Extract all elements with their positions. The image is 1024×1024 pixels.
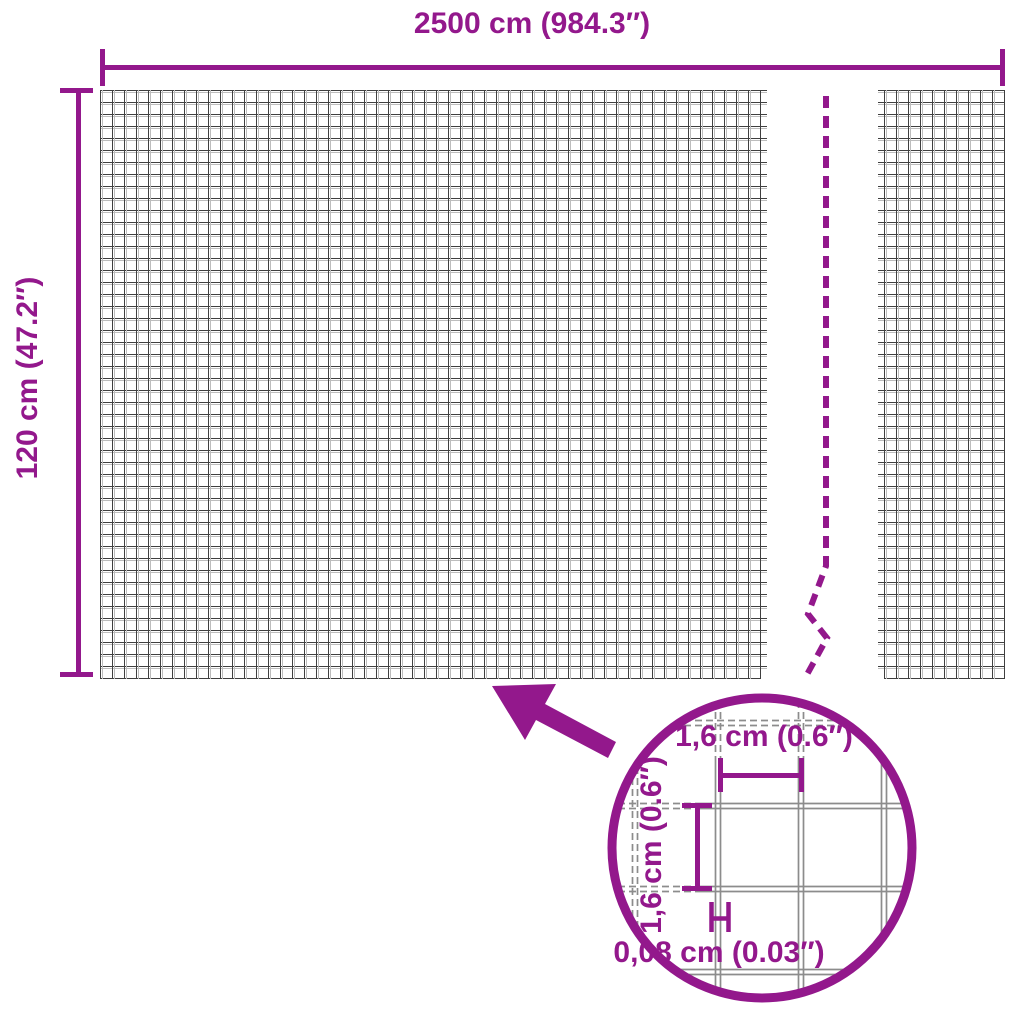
cell-width-label: 1,6 cm (0.6″) (675, 721, 853, 753)
zoom-arrow-icon (492, 684, 616, 758)
cell-height-label: 1,6 cm (0.6″) (636, 756, 668, 934)
wire-thickness-label: 0,08 cm (0.03″) (613, 937, 824, 969)
diagram-overlay (0, 0, 1024, 1024)
cell-width-measure (718, 758, 803, 792)
cell-height-measure (682, 806, 712, 890)
mesh-break-line (804, 96, 827, 680)
product-dimension-diagram: 2500 cm (984.3″) 120 cm (47.2″) (0, 0, 1024, 1024)
